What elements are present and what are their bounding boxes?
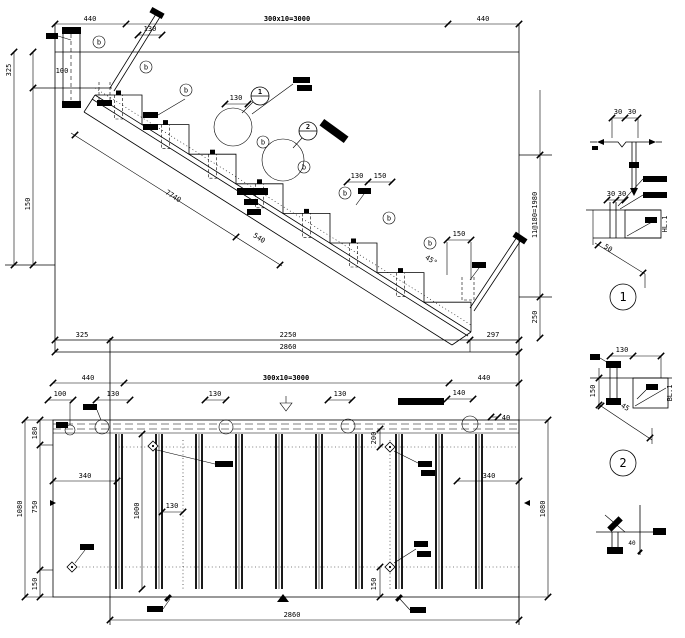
tread-bar-group xyxy=(156,434,162,589)
connection-sketch: 40 xyxy=(596,505,666,555)
dim-text: 1080 xyxy=(539,501,547,518)
tread-bar-group xyxy=(196,434,202,589)
part-marker: b xyxy=(298,161,310,173)
dim-text: 150 xyxy=(374,172,387,180)
dim-text: 250 xyxy=(531,311,539,324)
part-markers: b b b b b b b b xyxy=(93,36,436,249)
plan-right-dims: 1080 xyxy=(519,417,551,600)
detail-number-2: 2 xyxy=(610,450,636,476)
detail-callout-2: 2 xyxy=(293,122,317,148)
dim-text: 130 xyxy=(616,346,629,354)
left-dim-lines: 325 150 100 xyxy=(5,49,68,268)
part-letter: b xyxy=(343,190,347,198)
dim-text: 540 xyxy=(252,232,267,245)
upper-section-view: 440 300x10=3000 440 325 150 100 325 2250… xyxy=(5,7,552,625)
dim-text: 130 xyxy=(166,502,179,510)
detail-column: 30 30 30 30 HL.1 50 xyxy=(586,108,674,555)
tread-bar-group xyxy=(356,434,362,589)
dim-text: 45 xyxy=(619,402,630,413)
part-marker: b xyxy=(180,84,192,96)
tread-bar-group xyxy=(476,434,482,589)
part-letter: b xyxy=(97,39,101,47)
redacted-label-bar xyxy=(293,77,310,83)
tread-bar-group xyxy=(396,434,402,589)
detail-tag: HL.1 xyxy=(661,216,669,233)
redacted-label-bar xyxy=(358,188,371,194)
dim-text: 30 xyxy=(614,108,622,116)
dim-text: 300x10=3000 xyxy=(263,374,309,382)
redacted-label-bar xyxy=(645,217,657,223)
redacted-label-bar xyxy=(417,551,431,557)
dim-text: 30 xyxy=(618,190,626,198)
redacted-label-bar xyxy=(56,422,68,428)
dim-text: 40 xyxy=(628,540,636,547)
part-marker: b xyxy=(383,212,395,224)
tread-bar-group xyxy=(276,434,282,589)
detail-number-1: 1 xyxy=(610,284,636,310)
dim-text: 2860 xyxy=(280,343,297,351)
weld-seam-bar xyxy=(320,119,349,143)
redacted-label-bar xyxy=(410,607,426,613)
dim-text: 440 xyxy=(478,374,491,382)
part-marker: b xyxy=(93,36,105,48)
plan-label-bars xyxy=(56,398,444,613)
dim-text: 140 xyxy=(453,389,466,397)
section-triangle xyxy=(277,594,289,602)
dim-text: 340 xyxy=(79,472,92,480)
part-marker: b xyxy=(424,237,436,249)
bottom-dim-chain: 325 2250 297 2860 xyxy=(52,331,522,355)
dim-text: 130 xyxy=(209,390,222,398)
plan-bottom-dim: 2860 xyxy=(107,597,522,625)
channel-markers xyxy=(65,403,478,435)
dim-text: 2250 xyxy=(280,331,297,339)
stair-stringer xyxy=(84,88,471,345)
part-letter: b xyxy=(302,164,306,172)
redacted-label-bar xyxy=(237,188,268,195)
tread-bar-group xyxy=(436,434,442,589)
redacted-label-bar xyxy=(590,354,600,360)
dim-text: 130 xyxy=(351,172,364,180)
redacted-label-bar xyxy=(472,262,486,268)
stair-detail-drawing: 440 300x10=3000 440 325 150 100 325 2250… xyxy=(0,0,685,638)
dim-text: 30 xyxy=(628,108,636,116)
right-pointer xyxy=(524,500,530,506)
reference-lines xyxy=(75,440,519,589)
plan-left-dims: 180 750 150 1080 xyxy=(16,417,53,600)
dim-text: 750 xyxy=(31,501,39,514)
dim-text: 130 xyxy=(230,94,243,102)
dim-text: 325 xyxy=(76,331,89,339)
detail-number: 2 xyxy=(619,456,626,470)
plate-profile-sketch: 30 30 xyxy=(590,108,662,196)
dim-text: 40 xyxy=(502,414,510,422)
part-letter: b xyxy=(184,87,188,95)
redacted-label-bar xyxy=(46,33,58,39)
redacted-label-bar xyxy=(297,85,312,91)
dim-text: 150 xyxy=(589,385,597,398)
callout-number: 1 xyxy=(258,88,262,96)
part-marker: b xyxy=(339,187,351,199)
plan-view: 440 300x10=3000 440 100 130 130 130 140 … xyxy=(16,374,551,625)
detail-tag: BL.1 xyxy=(666,385,674,402)
left-rail-post xyxy=(110,7,165,91)
part-marker: b xyxy=(257,136,269,148)
plan-inner-dims: 1000 130 200 340 340 150 xyxy=(50,426,522,600)
dim-text: 11@180=1980 xyxy=(531,192,539,238)
dim-text: 150 xyxy=(370,578,378,591)
redacted-label-bar xyxy=(643,176,667,182)
dim-text: 440 xyxy=(82,374,95,382)
dim-text: 45° xyxy=(424,254,439,267)
dim-text: 150 xyxy=(453,230,466,238)
top-dim-chain: 440 300x10=3000 440 xyxy=(52,15,522,27)
redacted-label-bar xyxy=(421,470,435,476)
dim-text: 440 xyxy=(477,15,490,23)
redacted-label-bar xyxy=(143,112,158,118)
redacted-label-bar xyxy=(398,398,444,405)
tread-bars xyxy=(116,434,482,589)
cad-canvas: 440 300x10=3000 440 325 150 100 325 2250… xyxy=(0,0,685,638)
dim-text: 100 xyxy=(56,67,69,75)
dim-text: 180 xyxy=(31,427,39,440)
detail-region-circle-1 xyxy=(214,108,252,146)
redacted-label-bar xyxy=(592,146,598,150)
dim-text: 7740 xyxy=(164,188,183,204)
dim-text: 150 xyxy=(24,198,32,211)
dim-text: 150 xyxy=(31,578,39,591)
dim-text: 130 xyxy=(107,390,120,398)
dim-text: 297 xyxy=(487,331,500,339)
redacted-label-bar xyxy=(643,192,667,198)
part-letter: b xyxy=(428,240,432,248)
redacted-label-bar xyxy=(143,124,158,130)
dim-text: 1000 xyxy=(133,503,141,520)
dim-text: 1080 xyxy=(16,501,24,518)
dim-text: 300x10=3000 xyxy=(264,15,310,23)
redacted-label-bar xyxy=(418,461,432,467)
dim-text: 340 xyxy=(483,472,496,480)
part-letter: b xyxy=(144,64,148,72)
redacted-label-bar xyxy=(83,404,97,410)
dim-text: 325 xyxy=(5,64,13,77)
detail-2: 130 BL.1 150 45 2 xyxy=(589,346,674,476)
tread-bar-group xyxy=(116,434,122,589)
dim-text: 130 xyxy=(144,25,157,33)
dim-text: 200 xyxy=(370,432,378,445)
dim-text: 130 xyxy=(334,390,347,398)
redacted-label-bar xyxy=(646,384,658,390)
part-marker: b xyxy=(140,61,152,73)
label-bars xyxy=(46,33,486,280)
part-letter: b xyxy=(261,139,265,147)
level-symbol-open xyxy=(280,403,292,411)
dim-text: 100 xyxy=(54,390,67,398)
detail-1: 30 30 HL.1 50 1 xyxy=(586,176,669,310)
redacted-label-bar xyxy=(414,541,428,547)
right-dim-lines: 11@180=1980 250 xyxy=(519,90,552,341)
redacted-label-bar xyxy=(215,461,233,467)
tread-bar-group xyxy=(316,434,322,589)
redacted-label-bar xyxy=(147,606,163,612)
dim-text: 30 xyxy=(607,190,615,198)
redacted-label-bar xyxy=(247,209,261,215)
dim-text: 2860 xyxy=(284,611,301,619)
redacted-label-bar xyxy=(80,544,94,550)
callout-number: 2 xyxy=(306,123,310,131)
part-letter: b xyxy=(387,215,391,223)
dim-text: 50 xyxy=(602,243,613,254)
node-markers xyxy=(67,441,420,572)
plan-top-dims: 440 300x10=3000 440 100 130 130 130 140 … xyxy=(45,374,522,422)
tread-bar-group xyxy=(236,434,242,589)
detail-callout-1: 1 xyxy=(242,87,269,113)
detail-number: 1 xyxy=(619,290,626,304)
redacted-label-bar xyxy=(244,199,258,205)
dim-text: 440 xyxy=(84,15,97,23)
